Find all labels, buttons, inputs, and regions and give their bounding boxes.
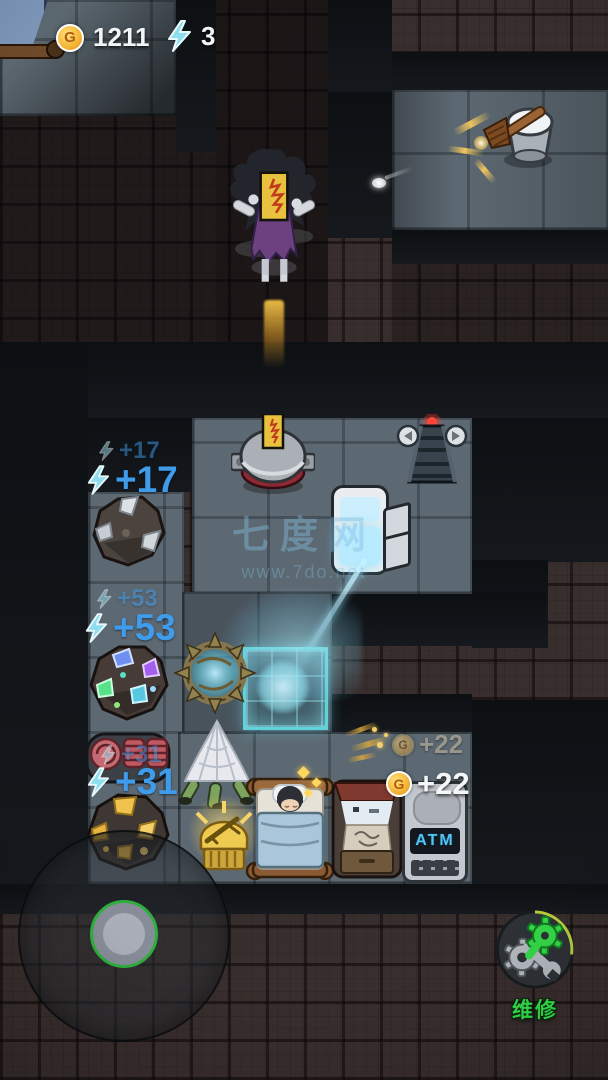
fridge[interactable] [331, 485, 407, 573]
joystick-base[interactable] [18, 830, 230, 1042]
coin-icon: G [392, 734, 414, 756]
coin-icon: G [56, 24, 84, 52]
sleeping-bed-sprite [245, 775, 335, 883]
energy-gain-text: +31 [86, 761, 178, 803]
blanket-corner [0, 0, 48, 46]
wall [332, 592, 546, 646]
game-viewport: ATM +17 +17 +53 +53 +31 +31 G +22 G [0, 0, 608, 1080]
wall [328, 0, 392, 92]
repair-button-label: 维修 [512, 994, 558, 1024]
atm-sign: ATM [410, 828, 460, 854]
coin-count: 1211 [93, 22, 149, 53]
gem-ore-rock[interactable] [87, 641, 173, 723]
fridge-freezer-glow [340, 497, 380, 521]
bed-glimpse [0, 0, 58, 58]
gem-ore-sprite [87, 641, 173, 723]
fridge-open-door [383, 502, 411, 573]
energy-gain-text: +17 [86, 459, 178, 501]
lightning-icon [166, 20, 192, 52]
coin-spark-dot [372, 727, 377, 732]
muzzle-flash-core [474, 136, 488, 150]
sleeping-character-bed[interactable] [245, 775, 335, 883]
coin-spark-dot [384, 733, 388, 737]
wall [392, 230, 608, 264]
coin-gain-text: G +22 [386, 766, 470, 802]
energy-count: 3 [201, 21, 215, 52]
projectile [372, 178, 386, 188]
ghost-enemy[interactable] [226, 146, 322, 292]
wall [472, 700, 608, 886]
wall [0, 342, 608, 418]
wall [0, 342, 88, 888]
floor-shadow [392, 264, 608, 342]
lightning-icon [86, 767, 110, 797]
lightning-icon [86, 465, 110, 495]
lightning-icon [96, 589, 112, 609]
fridge-door-divider [386, 531, 408, 539]
wall [328, 92, 392, 238]
lightning-icon [84, 613, 108, 643]
talisman-turret-sprite [231, 414, 315, 498]
wall [332, 694, 472, 732]
energy-gain-text: +53 [84, 607, 176, 649]
lightning-icon [98, 441, 114, 461]
coin-spark-dot [377, 742, 383, 748]
energy-counter: 3 [166, 20, 215, 52]
joystick-knob[interactable] [90, 900, 158, 968]
wrench-gear-icon [491, 906, 579, 993]
atm-keypad [411, 860, 459, 876]
talisman-turret[interactable] [231, 414, 315, 498]
thorn-wheel-trap[interactable] [167, 627, 263, 721]
coin-counter: G 1211 [56, 22, 149, 53]
fridge-main-glow [340, 527, 380, 565]
coin-icon: G [386, 771, 412, 797]
wall [472, 418, 608, 562]
coin-gain-text-old: G +22 [392, 729, 463, 760]
wall [392, 52, 608, 90]
scanner-gate-turret[interactable] [395, 414, 469, 490]
spirit-beam-effect [264, 300, 284, 368]
repair-button[interactable]: 维修 [487, 906, 583, 1024]
thorn-wheel-sprite [167, 627, 263, 721]
ghost-sprite [226, 146, 322, 292]
scanner-gate-sprite [395, 414, 469, 490]
iron-ore-sprite [88, 493, 170, 569]
broom-bucket-turret[interactable] [480, 96, 560, 182]
joystick-knob-center [103, 913, 145, 955]
iron-ore-rock[interactable] [88, 493, 170, 569]
atm-label: ATM [415, 832, 454, 850]
broom-bucket-sprite [480, 96, 560, 182]
